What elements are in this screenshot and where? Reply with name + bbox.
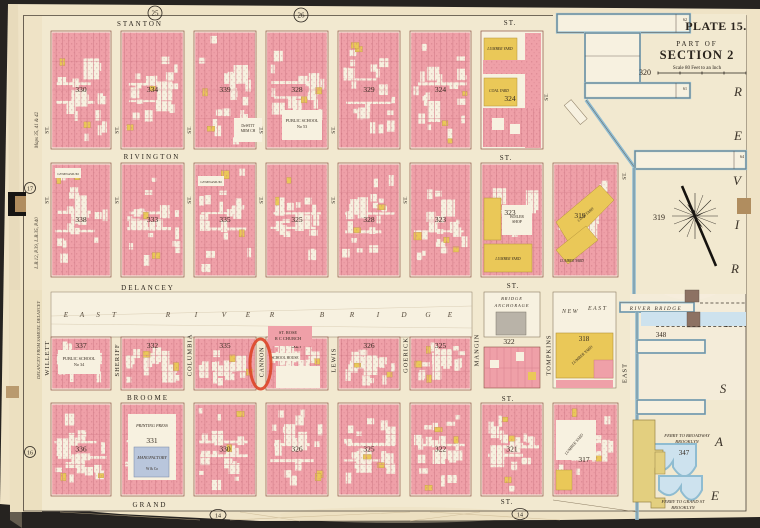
- svg-text:325: 325: [291, 215, 303, 224]
- svg-text:R: R: [730, 261, 739, 276]
- svg-text:E A S T: E A S T: [587, 306, 607, 312]
- svg-text:I: I: [734, 217, 740, 232]
- svg-text:CANNON: CANNON: [260, 347, 266, 377]
- svg-text:SECTION 2: SECTION 2: [660, 48, 735, 62]
- svg-text:ST.: ST.: [45, 196, 51, 204]
- svg-text:ST.: ST.: [544, 93, 550, 101]
- svg-text:ST.: ST.: [331, 196, 337, 204]
- svg-text:PUBLIC SCHOOL: PUBLIC SCHOOL: [63, 356, 96, 361]
- svg-text:334: 334: [147, 85, 159, 94]
- svg-text:PART OF: PART OF: [676, 40, 717, 48]
- svg-text:R C CHURCH: R C CHURCH: [275, 336, 302, 341]
- svg-text:LEWIS: LEWIS: [331, 348, 338, 373]
- svg-text:322: 322: [503, 337, 515, 346]
- svg-text:E: E: [733, 128, 742, 143]
- svg-text:RIVINGTON: RIVINGTON: [124, 153, 181, 161]
- svg-text:347: 347: [679, 449, 690, 457]
- svg-text:ST.: ST.: [259, 196, 265, 204]
- svg-text:BRIDGE: BRIDGE: [501, 296, 523, 301]
- svg-text:ST.: ST.: [500, 154, 512, 162]
- svg-text:336: 336: [75, 445, 87, 454]
- svg-text:GYMNASIUM: GYMNASIUM: [200, 180, 221, 184]
- svg-text:26: 26: [298, 12, 306, 20]
- svg-text:LUMBER YARD: LUMBER YARD: [494, 257, 520, 261]
- svg-text:R: R: [733, 84, 742, 99]
- svg-text:339: 339: [219, 85, 231, 94]
- svg-text:E: E: [447, 311, 453, 319]
- svg-text:MEM CH: MEM CH: [241, 129, 256, 133]
- svg-text:317: 317: [578, 455, 590, 464]
- svg-text:BROOKLYN: BROOKLYN: [675, 439, 699, 444]
- svg-text:A: A: [714, 434, 723, 449]
- svg-text:335: 335: [219, 215, 231, 224]
- svg-text:ST.: ST.: [502, 395, 514, 403]
- svg-text:GOERICK: GOERICK: [403, 337, 410, 373]
- svg-text:G: G: [425, 311, 431, 319]
- svg-text:337: 337: [75, 341, 87, 350]
- svg-text:323: 323: [435, 215, 447, 224]
- svg-text:PLATE 15.: PLATE 15.: [685, 19, 747, 33]
- svg-text:FERRY TO BROADWAY: FERRY TO BROADWAY: [663, 433, 710, 438]
- svg-text:323: 323: [504, 208, 516, 217]
- svg-text:64: 64: [740, 154, 744, 159]
- svg-text:ST.: ST.: [622, 172, 628, 180]
- svg-text:319: 319: [574, 211, 586, 220]
- svg-text:324: 324: [504, 94, 516, 103]
- svg-text:WILLETT: WILLETT: [44, 340, 51, 375]
- svg-text:ST.: ST.: [115, 196, 121, 204]
- svg-text:E: E: [710, 488, 719, 503]
- svg-text:326: 326: [291, 445, 303, 454]
- svg-text:R: R: [349, 311, 355, 319]
- svg-text:330: 330: [219, 445, 231, 454]
- svg-text:325: 325: [435, 341, 447, 350]
- svg-text:ST.: ST.: [259, 126, 265, 134]
- svg-text:D: D: [400, 311, 407, 319]
- svg-text:Maps 35, 41 & 42: Maps 35, 41 & 42: [35, 111, 40, 149]
- svg-text:DELANCEY FROM SAMUEL DELANC: DELANCEY FROM SAMUEL DELANCEY: [36, 300, 41, 380]
- svg-text:RIVER BRIDGE: RIVER BRIDGE: [629, 306, 682, 312]
- svg-text:DELANCEY: DELANCEY: [121, 284, 175, 292]
- svg-text:14: 14: [215, 514, 221, 520]
- svg-text:SCHOOL HOUSE: SCHOOL HOUSE: [271, 356, 299, 360]
- svg-text:332: 332: [147, 341, 159, 350]
- svg-text:ST.: ST.: [187, 196, 193, 204]
- svg-text:No 53: No 53: [297, 124, 307, 129]
- svg-text:62: 62: [683, 17, 687, 22]
- svg-text:BROOME: BROOME: [127, 394, 169, 402]
- svg-text:I: I: [376, 311, 380, 319]
- svg-text:333: 333: [147, 215, 159, 224]
- svg-text:LUMBER YARD: LUMBER YARD: [486, 47, 512, 51]
- svg-text:A: A: [79, 311, 85, 319]
- svg-text:DeWITT: DeWITT: [241, 124, 255, 128]
- svg-text:ST.: ST.: [187, 126, 193, 134]
- svg-text:16: 16: [27, 451, 33, 457]
- svg-text:330: 330: [75, 85, 87, 94]
- svg-text:W & Co: W & Co: [146, 467, 158, 471]
- svg-text:321: 321: [506, 445, 518, 454]
- svg-text:TOMPKINS: TOMPKINS: [546, 334, 553, 375]
- svg-text:326: 326: [363, 341, 375, 350]
- svg-text:No 34: No 34: [74, 362, 85, 367]
- svg-text:N E W: N E W: [561, 309, 579, 315]
- svg-text:S: S: [720, 381, 727, 396]
- svg-text:STANTON: STANTON: [117, 20, 163, 28]
- svg-text:SHERIFF: SHERIFF: [114, 343, 121, 376]
- svg-text:E: E: [63, 311, 69, 319]
- svg-text:331: 331: [146, 436, 158, 445]
- svg-text:R: R: [269, 311, 275, 319]
- svg-text:COLUMBIA: COLUMBIA: [187, 334, 194, 377]
- svg-text:328: 328: [363, 215, 375, 224]
- svg-text:EAST: EAST: [622, 363, 629, 383]
- svg-text:17: 17: [27, 187, 33, 193]
- svg-text:MANUFACTORY: MANUFACTORY: [136, 455, 167, 460]
- svg-text:61: 61: [683, 86, 687, 91]
- svg-text:348: 348: [656, 331, 667, 339]
- svg-text:E: E: [245, 311, 251, 319]
- svg-text:Scale 80 Feet to an Inch: Scale 80 Feet to an Inch: [673, 66, 722, 71]
- svg-text:329: 329: [363, 85, 375, 94]
- svg-text:L.B.12, P.39, L.B.35, P.40: L.B.12, P.39, L.B.35, P.40: [35, 217, 40, 270]
- svg-text:ANCHORAGE: ANCHORAGE: [493, 303, 529, 308]
- svg-text:ST. ROSE: ST. ROSE: [279, 330, 298, 335]
- svg-text:R: R: [165, 311, 171, 319]
- svg-text:MANGIN: MANGIN: [474, 334, 481, 367]
- svg-text:318: 318: [579, 335, 590, 343]
- svg-text:ST.: ST.: [45, 126, 51, 134]
- svg-text:322: 322: [435, 445, 447, 454]
- svg-text:PRINTING PRESS: PRINTING PRESS: [135, 423, 169, 428]
- svg-text:319: 319: [653, 213, 665, 222]
- svg-text:I: I: [194, 311, 198, 319]
- svg-text:FERRY TO GRAND ST: FERRY TO GRAND ST: [660, 499, 705, 504]
- svg-text:GYMNASIUM: GYMNASIUM: [57, 172, 78, 176]
- svg-text:ST.: ST.: [115, 126, 121, 134]
- svg-text:ST.: ST.: [403, 196, 409, 204]
- svg-text:LUMBER YARD: LUMBER YARD: [559, 259, 584, 263]
- svg-text:320: 320: [639, 68, 651, 77]
- svg-text:S: S: [96, 311, 100, 319]
- svg-text:25: 25: [152, 10, 160, 18]
- svg-text:BROOKLYN: BROOKLYN: [671, 505, 695, 510]
- svg-text:ST.: ST.: [501, 498, 513, 506]
- svg-text:ST.: ST.: [504, 19, 516, 27]
- svg-text:SHOP: SHOP: [512, 220, 522, 224]
- svg-text:PUBLIC SCHOOL: PUBLIC SCHOOL: [286, 118, 319, 123]
- svg-text:325: 325: [363, 445, 375, 454]
- svg-text:B: B: [320, 311, 325, 319]
- svg-text:ST.: ST.: [331, 126, 337, 134]
- svg-text:COAL YARD: COAL YARD: [489, 89, 509, 93]
- svg-text:328: 328: [291, 85, 303, 94]
- svg-text:GRAND: GRAND: [133, 501, 168, 509]
- svg-text:335: 335: [219, 341, 231, 350]
- svg-text:324: 324: [435, 85, 447, 94]
- svg-text:338: 338: [75, 215, 87, 224]
- svg-text:ST.: ST.: [507, 282, 519, 290]
